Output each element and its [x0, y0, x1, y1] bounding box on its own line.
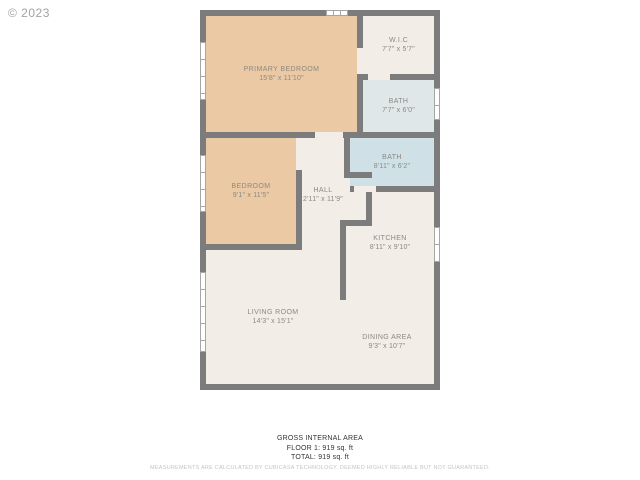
- window-left-bedroom: [200, 155, 206, 212]
- wall-segment: [363, 74, 368, 80]
- floor-primary-bedroom: [206, 16, 357, 132]
- wall-segment: [206, 132, 315, 138]
- wall-segment: [340, 226, 346, 300]
- wall-outer-right: [434, 10, 440, 390]
- total-area: TOTAL: 919 sq. ft: [0, 453, 640, 463]
- wall-segment: [390, 74, 434, 80]
- wall-segment: [206, 244, 302, 250]
- floor-bath-small: [363, 80, 434, 132]
- wall-segment: [366, 192, 372, 222]
- floor1-area: FLOOR 1: 919 sq. ft: [0, 444, 640, 454]
- measurement-disclaimer: MEASUREMENTS ARE CALCULATED BY CUBICASA …: [0, 464, 640, 472]
- floor-bedroom: [206, 138, 296, 244]
- window-right-bath: [434, 88, 440, 120]
- wall-segment: [350, 186, 354, 192]
- area-summary: GROSS INTERNAL AREA FLOOR 1: 919 sq. ft …: [0, 434, 640, 472]
- window-right-kitchen: [434, 227, 440, 262]
- wall-segment: [296, 170, 302, 250]
- floor-bath-large: [350, 138, 434, 186]
- gross-internal-area-title: GROSS INTERNAL AREA: [0, 434, 640, 444]
- wall-segment: [357, 74, 363, 132]
- window-left-living: [200, 272, 206, 352]
- wall-segment: [344, 172, 372, 178]
- wall-segment: [343, 132, 434, 138]
- wall-segment: [357, 16, 363, 48]
- wall-segment: [376, 186, 434, 192]
- floor-plan: PRIMARY BEDROOM 15'8" x 11'10" W.I.C 7'7…: [0, 0, 640, 480]
- wall-outer-top: [200, 10, 440, 16]
- window-left-primary: [200, 42, 206, 100]
- wall-outer-bottom: [200, 384, 440, 390]
- window-top: [326, 10, 348, 16]
